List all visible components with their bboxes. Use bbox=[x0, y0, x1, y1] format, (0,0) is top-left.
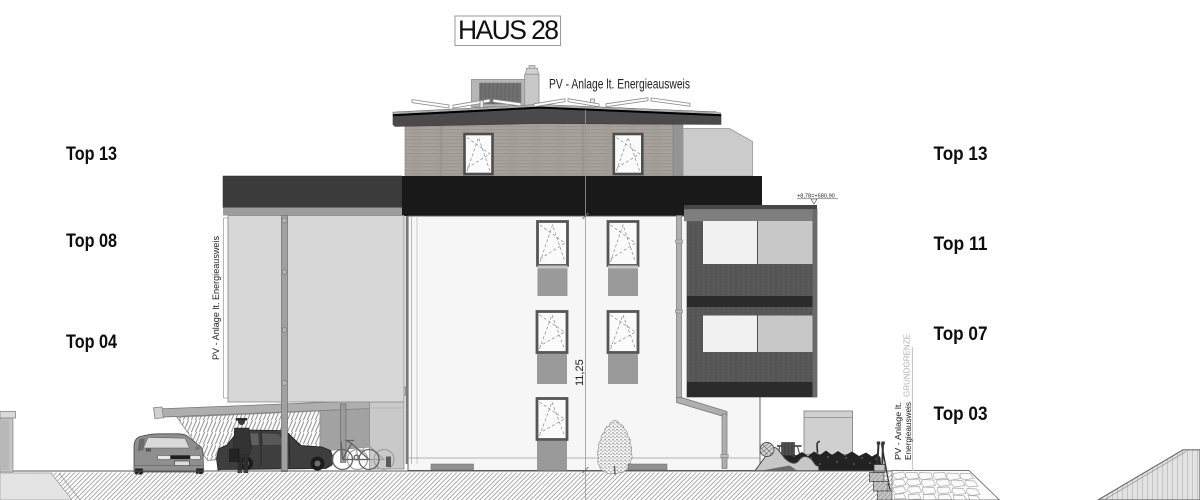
svg-text:Top 04: Top 04 bbox=[66, 331, 117, 353]
svg-text:HAUS 28: HAUS 28 bbox=[458, 15, 559, 45]
svg-text:Top 07: Top 07 bbox=[934, 323, 988, 345]
svg-text:PV - Anlage lt. Energieausweis: PV - Anlage lt. Energieausweis bbox=[549, 77, 690, 92]
svg-text:Top 03: Top 03 bbox=[934, 403, 988, 425]
svg-text:PV - Anlage lt.: PV - Anlage lt. bbox=[893, 402, 903, 460]
svg-text:GRUNDGRENZE: GRUNDGRENZE bbox=[902, 334, 912, 397]
svg-text:Energieausweis: Energieausweis bbox=[903, 402, 913, 460]
svg-text:Top 11: Top 11 bbox=[934, 233, 988, 255]
svg-text:Top 08: Top 08 bbox=[66, 230, 117, 252]
svg-text:PV - Anlage lt. Energieausweis: PV - Anlage lt. Energieausweis bbox=[211, 236, 221, 360]
svg-text:Top 13: Top 13 bbox=[934, 143, 988, 165]
svg-text:Top 13: Top 13 bbox=[66, 143, 117, 165]
svg-text:11,25: 11,25 bbox=[574, 359, 586, 386]
